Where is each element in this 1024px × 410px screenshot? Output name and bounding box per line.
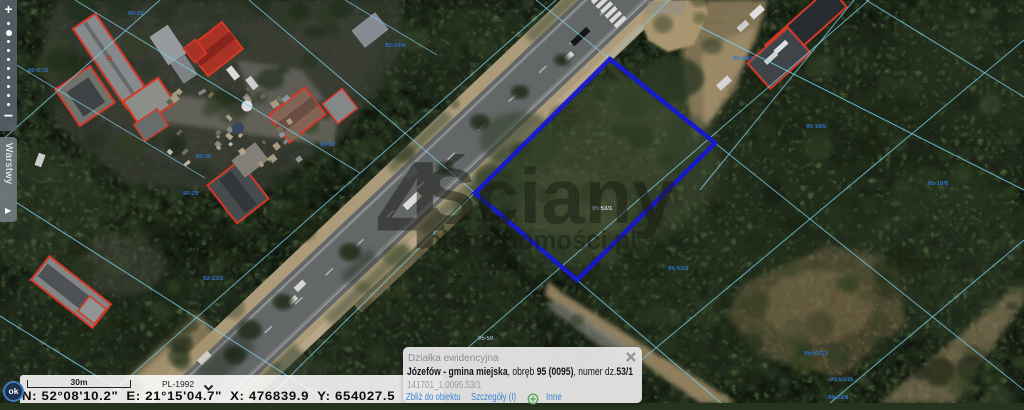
- svg-text:95-16/5: 95-16/5: [806, 124, 827, 130]
- svg-text:95-53/8: 95-53/8: [828, 395, 849, 401]
- svg-text:95-38/4: 95-38/4: [733, 56, 754, 62]
- svg-text:90-29: 90-29: [183, 191, 199, 197]
- svg-text:95-53/11: 95-53/11: [830, 377, 854, 383]
- svg-text:95-59: 95-59: [478, 336, 494, 342]
- svg-text:90-33: 90-33: [128, 11, 144, 17]
- svg-text:95-53/2: 95-53/2: [668, 266, 689, 272]
- svg-text:90-07/2: 90-07/2: [28, 68, 49, 74]
- svg-text:90-32: 90-32: [320, 142, 336, 148]
- svg-text:92-33/4: 92-33/4: [385, 43, 406, 49]
- svg-text:95-53/13: 95-53/13: [804, 351, 828, 357]
- svg-text:90-30: 90-30: [196, 154, 212, 160]
- svg-text:95-16/8: 95-16/8: [928, 181, 949, 187]
- svg-text:.nieruchomości.pl: .nieruchomości.pl: [419, 227, 637, 255]
- svg-text:92-23/2: 92-23/2: [203, 276, 224, 282]
